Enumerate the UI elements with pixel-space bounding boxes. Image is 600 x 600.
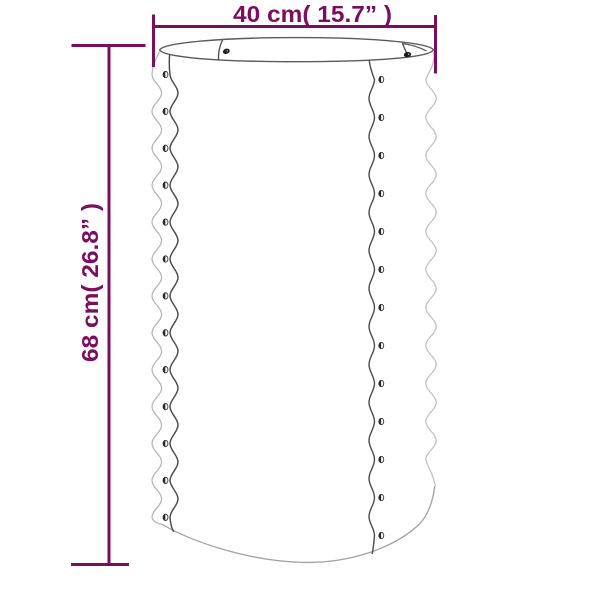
svg-text:40 cm( 15.7” ): 40 cm( 15.7” ) xyxy=(233,1,392,27)
svg-text:68 cm( 26.8” ): 68 cm( 26.8” ) xyxy=(77,203,103,362)
